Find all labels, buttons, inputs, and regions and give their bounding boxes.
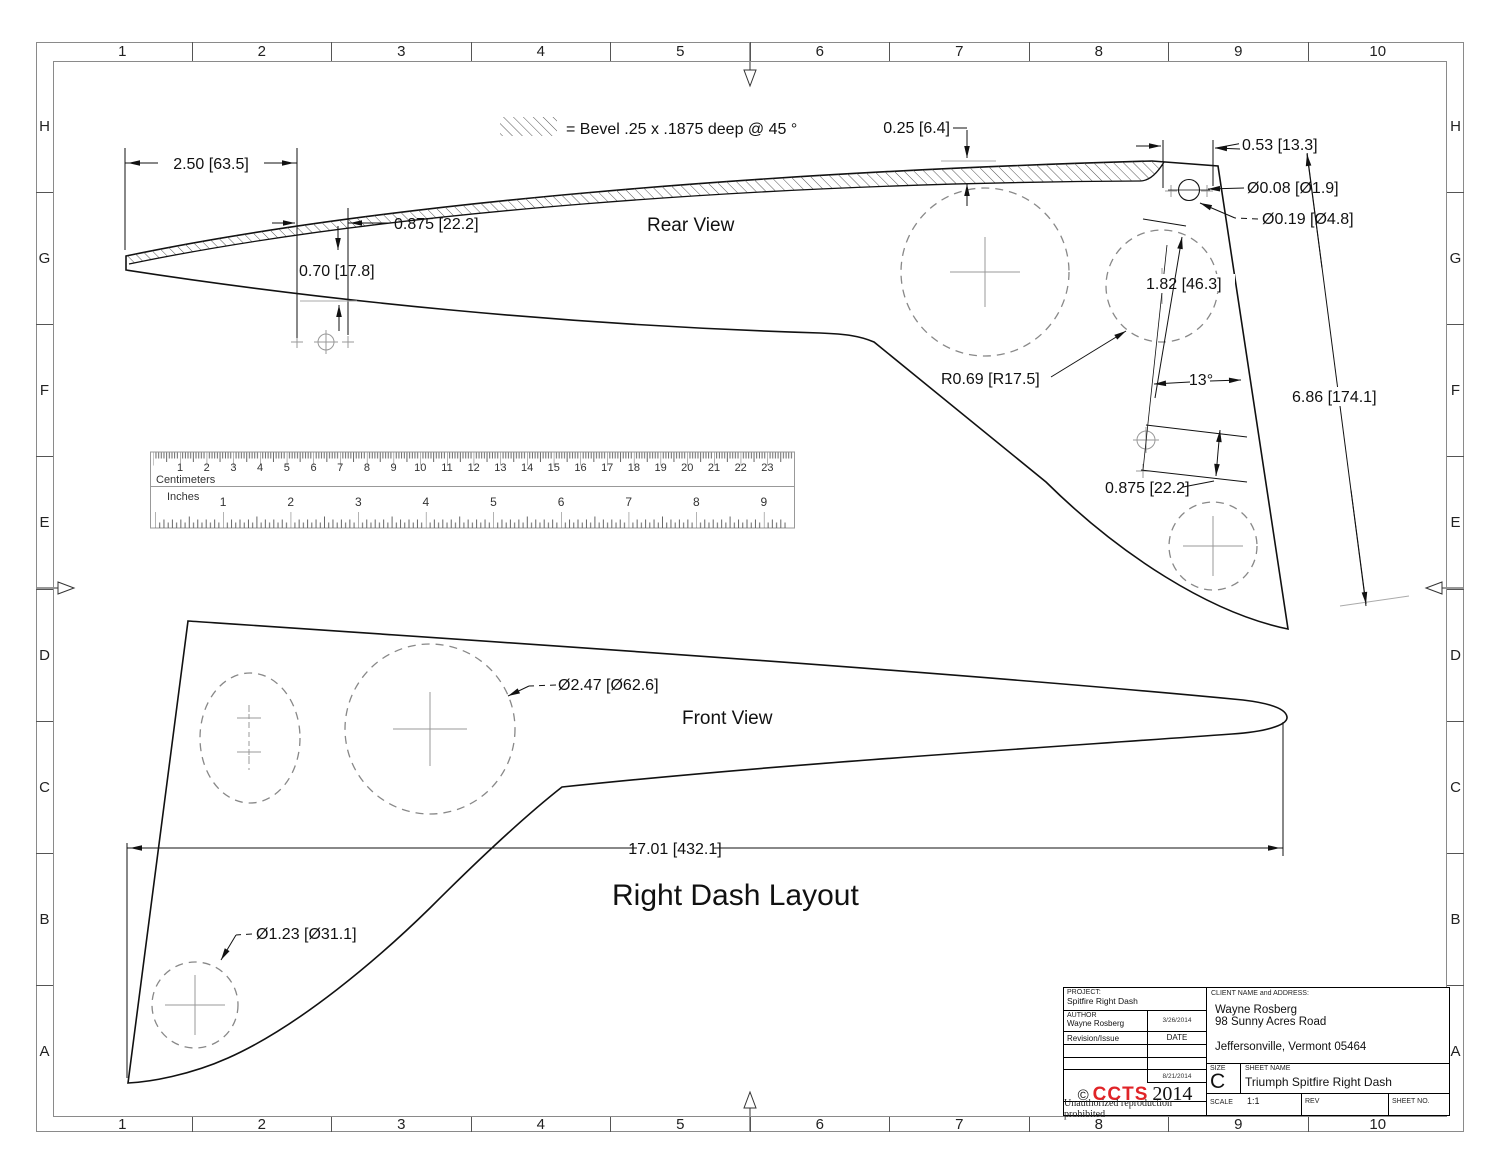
grid-row-label: C	[36, 722, 53, 854]
drawing-sheet: Centimeters Inches 1 2 3 4 5 6 7 8 9 10 …	[0, 0, 1500, 1159]
grid-row-label: C	[1447, 722, 1464, 854]
grid-strip-top: 1 2 3 4 5 6 7 8 9 10	[53, 42, 1447, 61]
grid-strip-right: H G F E D C B A	[1447, 61, 1464, 1117]
grid-row-label: G	[36, 193, 53, 325]
client-label: CLIENT NAME and ADDRESS:	[1211, 990, 1445, 997]
grid-strip-left: H G F E D C B A	[36, 61, 53, 1117]
client-cell: CLIENT NAME and ADDRESS: Wayne Rosberg 9…	[1207, 988, 1449, 1064]
grid-col-label: 3	[332, 42, 472, 61]
grid-col-label: 1	[53, 42, 193, 61]
title-block: PROJECT: Spitfire Right Dash AUTHOR Wayn…	[1063, 987, 1450, 1116]
grid-col-label: 4	[472, 1117, 612, 1132]
grid-row-label: F	[1447, 325, 1464, 457]
revision-row: Revision/Issue DATE	[1064, 1032, 1206, 1046]
client-name: Wayne Rosberg	[1215, 1004, 1445, 1016]
grid-col-label: 7	[890, 42, 1030, 61]
author-name: Wayne Rosberg	[1067, 1019, 1144, 1028]
grid-row-label: B	[1447, 854, 1464, 986]
scale-row: SCALE 1:1 REV SHEET NO.	[1207, 1094, 1449, 1115]
rev-label: REV	[1305, 1098, 1319, 1105]
grid-col-label: 5	[611, 42, 751, 61]
project-label: PROJECT:	[1067, 989, 1203, 996]
sheet-no-label: SHEET NO.	[1392, 1098, 1430, 1105]
revision-label: Revision/Issue	[1067, 1034, 1119, 1043]
author-row: AUTHOR Wayne Rosberg 3/26/2014	[1064, 1011, 1206, 1031]
sheet-name-label: SHEET NAME	[1245, 1065, 1445, 1072]
grid-col-label: 10	[1309, 42, 1448, 61]
grid-row-label: F	[36, 325, 53, 457]
author-date: 3/26/2014	[1163, 1017, 1192, 1024]
grid-col-label: 6	[751, 42, 891, 61]
grid-col-label: 4	[472, 42, 612, 61]
grid-col-label: 5	[611, 1117, 751, 1132]
grid-strip-bottom: 1 2 3 4 5 6 7 8 9 10	[53, 1117, 1447, 1132]
grid-row-label: G	[1447, 193, 1464, 325]
grid-col-label: 2	[193, 42, 333, 61]
issue-date-row: 8/21/2014	[1064, 1070, 1206, 1083]
issue-date: 8/21/2014	[1163, 1073, 1192, 1080]
sheet-name: Triumph Spitfire Right Dash	[1245, 1075, 1445, 1089]
project-cell: PROJECT: Spitfire Right Dash	[1064, 988, 1206, 1011]
grid-col-label: 8	[1030, 42, 1170, 61]
revision-empty-row	[1064, 1058, 1206, 1071]
inner-border	[53, 61, 1447, 1117]
grid-col-label: 9	[1169, 42, 1309, 61]
grid-row-label: E	[36, 457, 53, 589]
date-label: DATE	[1167, 1033, 1188, 1042]
scale-value: 1:1	[1247, 1096, 1260, 1106]
grid-row-label: D	[1447, 590, 1464, 722]
grid-col-label: 10	[1309, 1117, 1448, 1132]
client-street: 98 Sunny Acres Road	[1215, 1016, 1445, 1028]
client-city: Jeffersonville, Vermont 05464	[1215, 1041, 1445, 1053]
grid-row-label: H	[36, 61, 53, 193]
grid-col-label: 1	[53, 1117, 193, 1132]
project-name: Spitfire Right Dash	[1067, 996, 1203, 1006]
grid-col-label: 6	[751, 1117, 891, 1132]
grid-row-label: A	[36, 986, 53, 1117]
grid-col-label: 3	[332, 1117, 472, 1132]
revision-empty-row	[1064, 1045, 1206, 1058]
grid-col-label: 2	[193, 1117, 333, 1132]
copyright-notice: Unauthorized reproduction prohibited	[1064, 1101, 1206, 1115]
grid-row-label: E	[1447, 457, 1464, 589]
grid-row-label: H	[1447, 61, 1464, 193]
grid-row-label: D	[36, 590, 53, 722]
grid-col-label: 7	[890, 1117, 1030, 1132]
size-value: C	[1210, 1072, 1237, 1092]
author-label: AUTHOR	[1067, 1012, 1144, 1019]
grid-row-label: B	[36, 854, 53, 986]
scale-label: SCALE	[1210, 1099, 1233, 1106]
size-sheet-row: SIZE C SHEET NAME Triumph Spitfire Right…	[1207, 1064, 1449, 1095]
